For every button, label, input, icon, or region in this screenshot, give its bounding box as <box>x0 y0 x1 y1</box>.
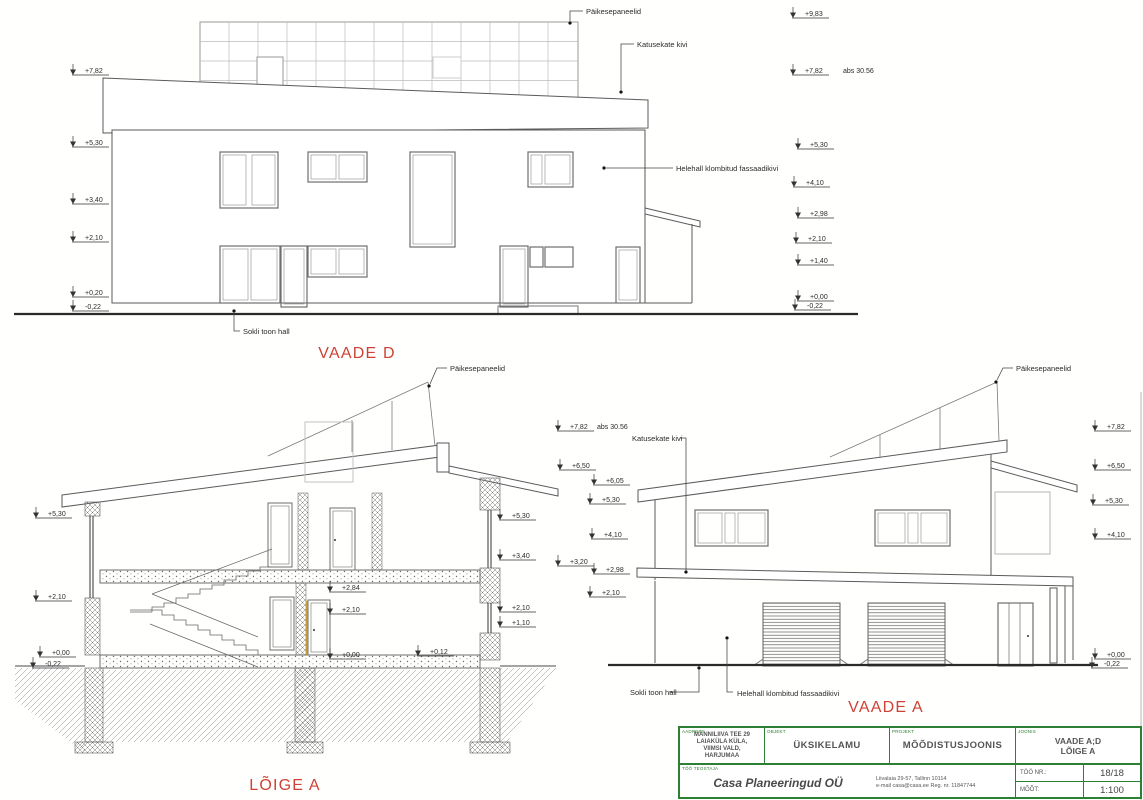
level-value: +1,40 <box>810 258 828 265</box>
level-value: -0,22 <box>85 304 101 311</box>
garage-doors <box>753 603 955 666</box>
level-value: +6,50 <box>1107 463 1125 470</box>
annotation-label: Sokli toon hall <box>630 688 677 697</box>
level-value: +0,00 <box>810 294 828 301</box>
architectural-line-work: +7,82+5,30+3,40+2,10+0,20-0,22+9,83+7,82… <box>0 0 1143 800</box>
annotation-label: Katusekate kivi <box>632 434 683 443</box>
level-mark: +1,10 <box>497 616 536 627</box>
level-value: -0,22 <box>807 303 823 310</box>
level-mark: +6,05 <box>591 474 630 485</box>
address-text: MÄNNILIIVA TEE 29 LAIAKÜLA KÜLA, VIIMSI … <box>694 732 750 760</box>
level-value: +0,20 <box>85 290 103 297</box>
upper-windows <box>695 510 950 546</box>
object-value: ÜKSIKELAMU <box>793 740 860 751</box>
section-loige-a <box>15 382 558 753</box>
canopy-post <box>1050 588 1057 663</box>
level-value: +5,30 <box>1105 498 1123 505</box>
level-value: +1,10 <box>512 620 530 627</box>
level-mark: +2,10 <box>33 590 72 601</box>
leader-line <box>680 438 688 574</box>
garage-eave-band <box>637 568 1073 586</box>
underfloor-fill <box>103 670 480 742</box>
level-value: +0,00 <box>52 650 70 657</box>
level-value: +2,98 <box>606 567 624 574</box>
level-value: -0,22 <box>1104 661 1120 668</box>
drawing-label: JOONIS <box>1018 729 1036 734</box>
roof-band <box>638 440 1007 502</box>
drawing-value: VAADE A;D LÕIGE A <box>1055 736 1101 756</box>
level-value: +5,30 <box>512 513 530 520</box>
level-mark: +5,30 <box>497 509 536 520</box>
level-value: +6,05 <box>606 478 624 485</box>
annotation-label: Päikesepaneelid <box>586 7 641 16</box>
scale-value: 1:100 <box>1084 782 1140 798</box>
level-mark: +2,10 <box>327 603 366 614</box>
level-value: +2,10 <box>808 236 826 243</box>
level-mark: +1,40 <box>795 254 834 265</box>
object-label: OBJEKT <box>767 729 786 734</box>
title-block-row1: AADRESS MÄNNILIIVA TEE 29 LAIAKÜLA KÜLA,… <box>680 728 1140 765</box>
level-mark: +7,82 <box>555 420 594 431</box>
level-mark: +4,10 <box>589 528 628 539</box>
staircase <box>130 549 272 667</box>
level-mark: +2,98 <box>795 207 834 218</box>
level-mark: +3,20 <box>555 555 594 566</box>
level-mark: +0,00 <box>37 646 76 657</box>
leader-line <box>232 309 240 331</box>
annotation-label: Katusekate kivi <box>637 40 688 49</box>
level-mark: +7,82 <box>70 64 109 75</box>
section-ext-roof <box>449 466 558 496</box>
title-block-meta: TÖÖ NR.: 18/18 MÕÕT: 1:100 <box>1016 765 1140 799</box>
level-value: +0,12 <box>430 649 448 656</box>
level-value: +5,30 <box>602 497 620 504</box>
job-nr-label: TÖÖ NR.: <box>1016 765 1084 781</box>
level-mark: +5,30 <box>1090 494 1129 505</box>
scale-row: MÕÕT: 1:100 <box>1016 782 1140 799</box>
view-title: VAADE D <box>318 345 395 362</box>
level-mark: +2,10 <box>70 231 109 242</box>
section-roof <box>62 445 440 507</box>
leader-line <box>619 44 634 94</box>
level-mark: +2,10 <box>587 586 626 597</box>
address-cell: AADRESS MÄNNILIIVA TEE 29 LAIAKÜLA KÜLA,… <box>680 728 765 763</box>
annotation-label: Päikesepaneelid <box>450 364 505 373</box>
title-block: AADRESS MÄNNILIIVA TEE 29 LAIAKÜLA KÜLA,… <box>678 726 1142 799</box>
leader-line <box>994 368 1013 384</box>
level-value: +4,10 <box>806 180 824 187</box>
level-value: +5,30 <box>85 140 103 147</box>
level-mark: +7,82 <box>1092 420 1131 431</box>
upper-slab <box>100 570 480 583</box>
level-mark: +0,12 <box>415 645 454 656</box>
level-mark: +5,30 <box>70 136 109 147</box>
level-value: +7,82 <box>85 68 103 75</box>
drawing-sheet: +7,82+5,30+3,40+2,10+0,20-0,22+9,83+7,82… <box>0 0 1143 800</box>
level-value: -0,22 <box>45 661 61 668</box>
level-value: +2,10 <box>602 590 620 597</box>
level-value: +5,30 <box>810 142 828 149</box>
level-value: +2,98 <box>810 211 828 218</box>
annotation-label: abs 30.56 <box>843 68 874 75</box>
company-name: Casa Planeeringud OÜ <box>680 776 876 790</box>
entrance-canopy <box>991 461 1077 492</box>
level-value: +5,30 <box>48 511 66 518</box>
drawing-cell: JOONIS VAADE A;D LÕIGE A <box>1016 728 1140 763</box>
level-value: +2,10 <box>85 235 103 242</box>
level-mark: +3,40 <box>70 193 109 204</box>
level-value: +9,83 <box>805 11 823 18</box>
level-mark: +6,50 <box>1092 459 1131 470</box>
level-value: +2,10 <box>342 607 360 614</box>
level-mark: +5,30 <box>33 507 72 518</box>
level-mark: +0,20 <box>70 286 109 297</box>
company-cell: TÖÖ TEOSTAJA Casa Planeeringud OÜ Liival… <box>680 765 1016 799</box>
project-value: MÕÕDISTUSJOONIS <box>903 740 1002 751</box>
soil-left <box>15 668 85 753</box>
level-value: +0,00 <box>1107 652 1125 659</box>
elevation-vaade-a <box>608 382 1098 666</box>
scale-label: MÕÕT: <box>1016 782 1084 798</box>
level-mark: +4,10 <box>1092 528 1131 539</box>
view-title: LÕIGE A <box>249 774 321 794</box>
company-address: Liivalaia 29-57, Tallinn 10114 e-mail ca… <box>876 776 1015 790</box>
under-canopy-panel <box>995 492 1050 554</box>
view-title: VAADE A <box>848 699 924 716</box>
annotation-label: Päikesepaneelid <box>1016 364 1071 373</box>
level-mark: +4,10 <box>791 176 830 187</box>
annotation-label: Helehall klombitud fassaadikivi <box>676 164 778 173</box>
annotation-label: abs 30.56 <box>597 424 628 431</box>
level-mark: +0,00 <box>1092 648 1131 659</box>
level-value: +7,82 <box>805 68 823 75</box>
level-value: +0,00 <box>342 652 360 659</box>
level-mark: +5,30 <box>587 493 626 504</box>
level-value: +2,10 <box>512 605 530 612</box>
address-label: AADRESS <box>682 729 705 734</box>
level-value: +4,10 <box>604 532 622 539</box>
level-value: +3,20 <box>570 559 588 566</box>
level-mark: +0,00 <box>795 290 834 301</box>
project-label: PROJEKT <box>892 729 914 734</box>
facade-wall <box>112 130 645 303</box>
title-block-row2: TÖÖ TEOSTAJA Casa Planeeringud OÜ Liival… <box>680 765 1140 799</box>
job-nr-value: 18/18 <box>1084 765 1140 781</box>
level-mark: +2,10 <box>793 232 832 243</box>
level-mark: +3,40 <box>497 549 536 560</box>
level-mark: +9,83 <box>790 7 829 18</box>
level-value: +3,40 <box>85 197 103 204</box>
level-value: +7,82 <box>570 424 588 431</box>
ground-slab <box>100 655 480 668</box>
entry-door <box>998 603 1033 666</box>
author-label: TÖÖ TEOSTAJA <box>682 766 718 771</box>
section-solar-panels <box>268 382 435 456</box>
level-value: +4,10 <box>1107 532 1125 539</box>
soil-right <box>500 668 556 753</box>
level-value: +7,82 <box>1107 424 1125 431</box>
level-mark: +2,98 <box>591 563 630 574</box>
annotation-label: Sokli toon hall <box>243 327 290 336</box>
annotation-label: Helehall klombitud fassaadikivi <box>737 689 839 698</box>
level-mark: +5,30 <box>795 138 834 149</box>
level-value: +2,10 <box>48 594 66 601</box>
object-cell: OBJEKT ÜKSIKELAMU <box>765 728 890 763</box>
level-mark: +2,10 <box>497 601 536 612</box>
leader-line <box>427 368 447 388</box>
level-value: +2,84 <box>342 585 360 592</box>
project-cell: PROJEKT MÕÕDISTUSJOONIS <box>890 728 1016 763</box>
level-mark: +6,50 <box>557 459 596 470</box>
job-nr-row: TÖÖ NR.: 18/18 <box>1016 765 1140 782</box>
level-mark: -0,22 <box>70 300 109 311</box>
level-value: +6,50 <box>572 463 590 470</box>
level-mark: +7,82 <box>790 64 829 75</box>
level-value: +3,40 <box>512 553 530 560</box>
